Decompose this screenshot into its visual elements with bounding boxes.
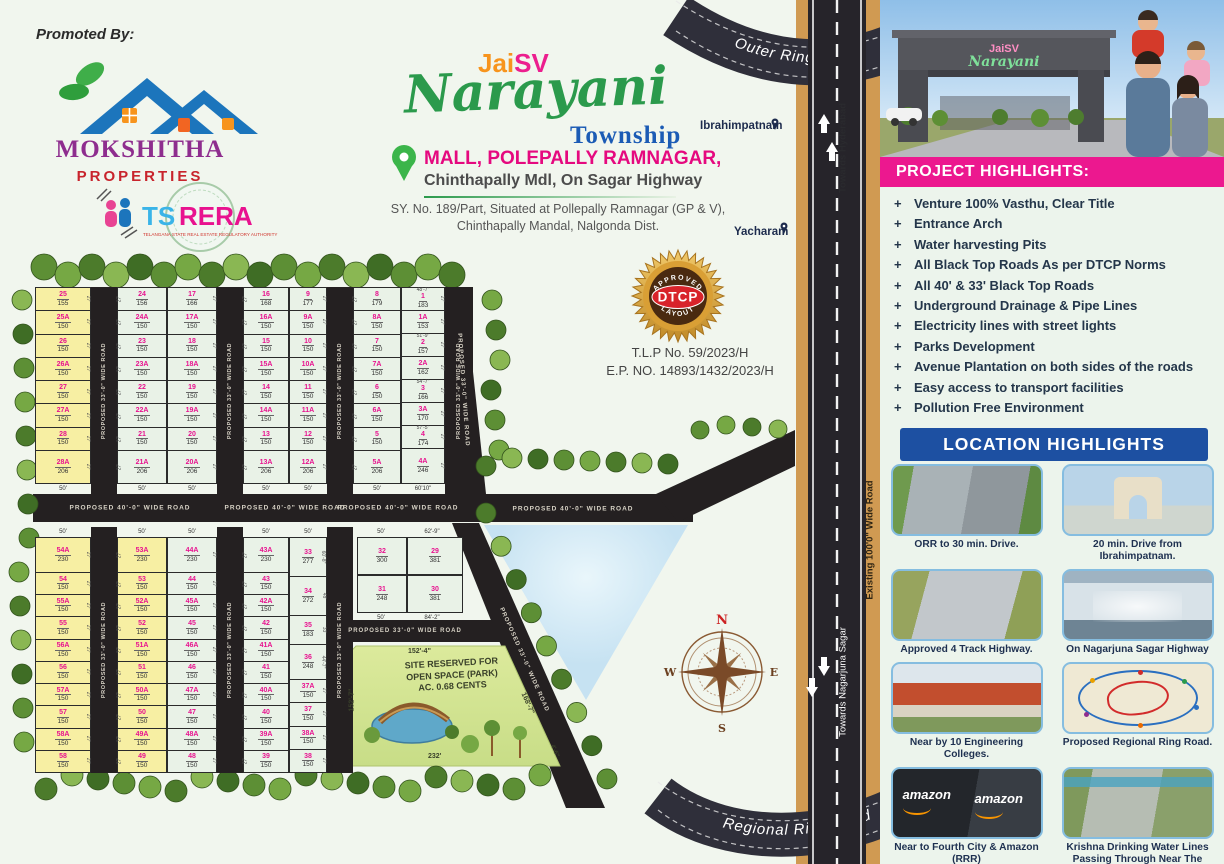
plot-36: 3624844'-7" bbox=[290, 645, 326, 680]
plot-number: 46A bbox=[184, 642, 201, 651]
ep-number: E.P. NO. 14893/1432/2023/H bbox=[582, 362, 798, 380]
plot-40A: 40A15027' bbox=[244, 684, 288, 706]
plot-44: 4415027' bbox=[168, 573, 216, 595]
plot-44A: 44A23027' bbox=[168, 538, 216, 573]
plot-number: 19A bbox=[184, 407, 201, 416]
plot-42: 4215027' bbox=[244, 617, 288, 639]
plot-number: 8 bbox=[373, 291, 381, 300]
tree-icon bbox=[486, 320, 506, 340]
plot-43A: 43A23027' bbox=[244, 538, 288, 573]
plot-46: 4615027' bbox=[168, 662, 216, 684]
photo-four-track-highway bbox=[891, 569, 1043, 641]
road-33-wide: PROPOSED 33'-0" WIDE ROAD bbox=[91, 527, 117, 773]
plot-number: 18A bbox=[184, 361, 201, 370]
photo-engineering-colleges bbox=[891, 662, 1043, 734]
plot-number: 27A bbox=[55, 407, 72, 416]
tree-icon bbox=[477, 774, 499, 796]
plot-number: 44 bbox=[186, 576, 198, 585]
plot-area: 150 bbox=[137, 393, 148, 400]
tree-icon bbox=[485, 410, 505, 430]
tree-icon bbox=[521, 603, 541, 623]
tree-icon bbox=[552, 669, 572, 689]
plot-number: 56 bbox=[57, 664, 69, 673]
plot-area: 150 bbox=[187, 673, 198, 680]
plot-area: 150 bbox=[372, 323, 383, 330]
plot-number: 29 bbox=[429, 548, 441, 557]
plot-area: 150 bbox=[137, 651, 148, 658]
plot-number: 43 bbox=[260, 576, 272, 585]
plot-number: 1A bbox=[417, 314, 430, 323]
plot-number: 6A bbox=[371, 407, 384, 416]
tree-icon bbox=[103, 262, 129, 288]
plot-number: 45A bbox=[184, 598, 201, 607]
tree-icon bbox=[55, 262, 81, 288]
tree-icon bbox=[223, 254, 249, 280]
road-40-label: PROPOSED 40'-0" WIDE ROAD bbox=[512, 506, 633, 513]
plot-side-dim: 44'-7" bbox=[320, 656, 326, 669]
column-dim-label: 60'10" bbox=[401, 484, 445, 494]
plot-area: 150 bbox=[261, 651, 272, 658]
tree-icon bbox=[199, 262, 225, 288]
amazon-smile-icon bbox=[903, 801, 931, 815]
highlight-item: +Easy access to transport facilities bbox=[894, 378, 1216, 398]
plot-56A: 56A15027' bbox=[36, 640, 90, 662]
plot-17A: 17A15027' bbox=[168, 311, 216, 334]
plot-5: 515027' bbox=[354, 428, 400, 451]
plot-area: 150 bbox=[261, 393, 272, 400]
plot-number: 57A bbox=[55, 687, 72, 696]
plot-side-dim: 27' bbox=[352, 389, 358, 396]
plot-area: 150 bbox=[58, 606, 69, 613]
plus-bullet-icon: + bbox=[894, 214, 914, 234]
plot-area: 150 bbox=[261, 416, 272, 423]
plot-column-cells: 44A23027'4415027'45A15027'4515027'46A150… bbox=[167, 537, 217, 773]
plot-side-dim: 27' bbox=[242, 580, 248, 587]
plot-6: 615027' bbox=[354, 381, 400, 404]
plot-41: 4115027' bbox=[244, 662, 288, 684]
plot-area: 230 bbox=[261, 556, 272, 563]
location-highlights-header: LOCATION HIGHLIGHTS bbox=[900, 428, 1208, 461]
plot-number: 23 bbox=[136, 338, 148, 347]
plot-number: 54 bbox=[57, 576, 69, 585]
plot-52: 5215027' bbox=[118, 617, 166, 639]
plot-number: 6 bbox=[373, 384, 381, 393]
plot-column-cells: 54A23027'5415027'55A15027'5515027'56A150… bbox=[35, 537, 91, 773]
plot-number: 53A bbox=[134, 547, 151, 556]
plot-area: 150 bbox=[137, 370, 148, 377]
project-name: Narayani bbox=[403, 55, 669, 125]
plot-area: 150 bbox=[58, 695, 69, 702]
plot-25: 2515527' bbox=[36, 288, 90, 311]
plot-number: 28A bbox=[55, 459, 72, 468]
column-dim-label: 50' bbox=[35, 527, 91, 537]
info-panel: JaiSV Narayani PROJECT HIGHLIGHTS: +Vent… bbox=[880, 0, 1224, 864]
arch-opening bbox=[1129, 495, 1147, 519]
plot-20A: 20A20627' bbox=[168, 451, 216, 483]
map-marker-icon bbox=[1090, 678, 1095, 683]
highlight-text: Water harvesting Pits bbox=[914, 235, 1046, 255]
project-type: Township bbox=[570, 122, 681, 150]
tree-icon bbox=[606, 452, 626, 472]
plot-side-dim: 27' bbox=[242, 436, 248, 443]
plot-number: 26A bbox=[55, 361, 72, 370]
map-marker-icon bbox=[1084, 712, 1089, 717]
plot-area: 150 bbox=[58, 439, 69, 446]
photo-orr-drive bbox=[891, 464, 1043, 536]
plot-side-dim: 27' bbox=[242, 389, 248, 396]
location-card-engineering-colleges: Near by 10 Engineering Colleges. bbox=[889, 662, 1044, 761]
plot-area: 248 bbox=[377, 595, 388, 602]
plot-12: 1215027' bbox=[290, 428, 326, 451]
plot-number: 20A bbox=[184, 459, 201, 468]
tree-icon bbox=[269, 778, 291, 800]
plot-number: 9A bbox=[302, 314, 315, 323]
plot-area: 150 bbox=[187, 416, 198, 423]
corner-row: 3230029381 bbox=[357, 537, 461, 575]
plot-number: 2 bbox=[419, 339, 427, 348]
tree-icon bbox=[295, 262, 321, 288]
plot-number: 33 bbox=[302, 549, 314, 558]
highlight-item: +All Black Top Roads As per DTCP Norms bbox=[894, 255, 1216, 275]
plot-area: 150 bbox=[303, 715, 314, 722]
plot-side-dim: 27' bbox=[116, 436, 122, 443]
plot-number: 12A bbox=[300, 459, 317, 468]
plot-area: 230 bbox=[137, 556, 148, 563]
plot-column-cells: 2515527'25A15027'2615027'26A15027'271502… bbox=[35, 287, 91, 484]
plot-13A: 13A20627' bbox=[244, 451, 288, 483]
location-card-regional-ring-road-map: Proposed Regional Ring Road. bbox=[1060, 662, 1215, 761]
road-33-wide: PROPOSED 33'-0" WIDE ROAD bbox=[327, 527, 353, 773]
place-pins bbox=[772, 119, 788, 235]
photo-nagarjuna-dam bbox=[1062, 569, 1214, 641]
plot-side-dim: 27' bbox=[352, 319, 358, 326]
plot-10A: 10A15027' bbox=[290, 358, 326, 381]
location-card-four-track-highway: Approved 4 Track Highway. bbox=[889, 569, 1044, 656]
tree-icon bbox=[217, 770, 239, 792]
people-icon bbox=[97, 189, 137, 238]
plot-side-dim: 27' bbox=[352, 436, 358, 443]
highlight-text: All Black Top Roads As per DTCP Norms bbox=[914, 255, 1166, 275]
plot-number: 13A bbox=[258, 459, 275, 468]
plot-number: 44A bbox=[184, 547, 201, 556]
corner-dim-label: 62'-9" bbox=[405, 527, 459, 537]
tree-icon bbox=[481, 380, 501, 400]
highlight-text: Easy access to transport facilities bbox=[914, 378, 1124, 398]
highlight-item: +Parks Development bbox=[894, 337, 1216, 357]
location-caption: Near to Fourth City & Amazon (RRR) bbox=[889, 842, 1044, 864]
plot-block-corner: 50'62'-9"3230029381312483038150'84'-2" bbox=[357, 527, 461, 623]
plot-20: 2015027' bbox=[168, 428, 216, 451]
plot-number: 39 bbox=[260, 753, 272, 762]
tree-icon bbox=[79, 254, 105, 280]
plot-column: 50'53A23027'5315027'52A15027'5215027'51A… bbox=[117, 527, 167, 773]
plot-area: 150 bbox=[372, 439, 383, 446]
tree-icon bbox=[367, 254, 393, 280]
plot-area: 183 bbox=[303, 631, 314, 638]
plot-number: 5A bbox=[371, 459, 384, 468]
plot-55: 5515027' bbox=[36, 617, 90, 639]
plot-48: 4815027' bbox=[168, 751, 216, 772]
plot-area: 230 bbox=[58, 556, 69, 563]
plot-area: 150 bbox=[372, 393, 383, 400]
tree-icon bbox=[529, 764, 551, 786]
plot-side-dim: 27' bbox=[116, 758, 122, 765]
plot-column-cells: 2415627'24A15027'2315027'23A15027'221502… bbox=[117, 287, 167, 484]
amazon-logo-text: amazon bbox=[903, 787, 951, 802]
plot-area: 183 bbox=[418, 302, 429, 309]
plot-area: 150 bbox=[187, 651, 198, 658]
column-dim-label: 50' bbox=[243, 527, 289, 537]
tree-icon bbox=[271, 254, 297, 280]
plot-area: 150 bbox=[137, 629, 148, 636]
plot-number: 28 bbox=[57, 431, 69, 440]
highlight-item: +Entrance Arch bbox=[894, 214, 1216, 234]
plot-side-dim: 27' bbox=[242, 552, 248, 559]
plot-area: 150 bbox=[261, 740, 272, 747]
plot-33: 3327760'-8" bbox=[290, 538, 326, 577]
corner-dim-label: 50' bbox=[357, 527, 405, 537]
plot-number: 11A bbox=[300, 407, 316, 416]
plot-51: 5115027' bbox=[118, 662, 166, 684]
plot-number: 51A bbox=[134, 642, 151, 651]
tree-icon bbox=[399, 780, 421, 802]
plot-15: 1515027' bbox=[244, 335, 288, 358]
tree-icon bbox=[12, 664, 32, 684]
plot-number: 22 bbox=[136, 384, 148, 393]
plot-area: 150 bbox=[261, 695, 272, 702]
plot-area: 150 bbox=[303, 393, 314, 400]
plot-50A: 50A15027' bbox=[118, 684, 166, 706]
plot-side-dim: 60'-8" bbox=[320, 551, 326, 564]
plus-bullet-icon: + bbox=[894, 276, 914, 296]
plot-number: 32 bbox=[376, 548, 388, 557]
road-33-label: PROPOSED 33'-0" WIDE ROAD bbox=[101, 342, 107, 438]
corner-dim-label: 50' bbox=[357, 613, 405, 623]
tree-icon bbox=[14, 358, 34, 378]
road-33-label: PROPOSED 33'-0" WIDE ROAD bbox=[337, 342, 343, 438]
tree-icon bbox=[691, 421, 709, 439]
column-dim-label: 50' bbox=[117, 527, 167, 537]
location-caption: Krishna Drinking Water Lines Passing Thr… bbox=[1060, 842, 1215, 864]
plot-30: 30381 bbox=[407, 575, 463, 613]
plot-number: 51 bbox=[136, 664, 148, 673]
photo-krishna-water-lines bbox=[1062, 767, 1214, 839]
plot-number: 4A bbox=[417, 458, 430, 467]
plot-42A: 42A15027' bbox=[244, 595, 288, 617]
plot-38: 3815027' bbox=[290, 750, 326, 772]
location-line2: Chinthapally Mdl, On Sagar Highway bbox=[424, 172, 702, 190]
plot-area: 277 bbox=[303, 558, 314, 565]
plot-27: 2715027' bbox=[36, 381, 90, 404]
highlight-item: +Water harvesting Pits bbox=[894, 235, 1216, 255]
plot-column: 2515527'25A15027'2615027'26A15027'271502… bbox=[35, 287, 91, 494]
plot-side-dim: 27' bbox=[352, 296, 358, 303]
tree-icon bbox=[580, 451, 600, 471]
park-dim-bottom: 232' bbox=[428, 753, 441, 760]
plot-area: 150 bbox=[58, 370, 69, 377]
plot-41A: 41A15027' bbox=[244, 640, 288, 662]
plot-side-dim: 27' bbox=[116, 464, 122, 471]
plot-number: 43A bbox=[258, 547, 275, 556]
plot-side-dim: 27' bbox=[242, 319, 248, 326]
plot-number: 26 bbox=[57, 338, 69, 347]
tree-icon bbox=[632, 453, 652, 473]
plot-55A: 55A15027' bbox=[36, 595, 90, 617]
plot-area: 150 bbox=[58, 393, 69, 400]
plot-side-dim: 27' bbox=[116, 552, 122, 559]
tree-icon bbox=[175, 254, 201, 280]
plot-number: 37 bbox=[302, 706, 314, 715]
plot-57: 5715027' bbox=[36, 706, 90, 728]
plot-side-dim: 27' bbox=[242, 669, 248, 676]
corner-row: 3124830381 bbox=[357, 575, 461, 613]
plot-area: 150 bbox=[303, 692, 314, 699]
plot-area: 248 bbox=[303, 663, 314, 670]
dtcp-badge: APPROVED DTCP LAYOUT bbox=[632, 250, 724, 342]
mokshitha-logo bbox=[58, 57, 258, 134]
tree-icon bbox=[18, 494, 38, 514]
location-line1: MALL, POLEPALLY RAMNAGAR, bbox=[424, 148, 721, 170]
road-33-wide: PROPOSED 33'-0" WIDE ROAD bbox=[91, 287, 117, 494]
plot-side-dim: 27' bbox=[352, 464, 358, 471]
plot-1: 48'-7"118327' bbox=[402, 288, 444, 311]
water-pipeline bbox=[1064, 777, 1212, 787]
plot-number: 56A bbox=[55, 642, 72, 651]
plot-24A: 24A15027' bbox=[118, 311, 166, 334]
compass-w: W bbox=[663, 666, 677, 679]
plot-area: 150 bbox=[261, 439, 272, 446]
plot-number: 17A bbox=[184, 314, 201, 323]
plus-bullet-icon: + bbox=[894, 337, 914, 357]
plot-number: 5 bbox=[373, 431, 381, 440]
plot-column: 1616827'16A15027'1515027'15A15027'141502… bbox=[243, 287, 289, 494]
plus-bullet-icon: + bbox=[894, 378, 914, 398]
towards-sagar-label: Towards Nagarjuna Sagar bbox=[838, 627, 849, 737]
plot-side-dim: 27' bbox=[116, 625, 122, 632]
column-dim-label: 50' bbox=[243, 484, 289, 494]
tree-icon bbox=[491, 536, 511, 556]
location-card-amazon-boxes: amazonamazonNear to Fourth City & Amazon… bbox=[889, 767, 1044, 864]
plot-side-dim: 27' bbox=[116, 647, 122, 654]
plot-area: 150 bbox=[137, 584, 148, 591]
plot-22A: 22A15027' bbox=[118, 404, 166, 427]
plot-area: 150 bbox=[137, 673, 148, 680]
highlight-item: +Pollution Free Environment bbox=[894, 398, 1216, 418]
plot-number: 42 bbox=[260, 620, 272, 629]
plot-number: 58 bbox=[57, 753, 69, 762]
plot-area: 150 bbox=[261, 762, 272, 769]
map-marker-icon bbox=[1138, 670, 1143, 675]
park-dim-left: 152'-7" bbox=[349, 689, 356, 712]
plot-43: 4315027' bbox=[244, 573, 288, 595]
plot-area: 206 bbox=[58, 468, 69, 475]
plot-number: 38 bbox=[302, 753, 314, 762]
plot-37A: 37A15027' bbox=[290, 680, 326, 703]
plot-side-dim: 27' bbox=[242, 691, 248, 698]
survey-line2: Chinthapally Mandal, Nalgonda Dist. bbox=[368, 219, 748, 233]
plot-side-dim: 27' bbox=[116, 389, 122, 396]
plot-23A: 23A15027' bbox=[118, 358, 166, 381]
plot-area: 206 bbox=[187, 468, 198, 475]
highlight-text: All 40' & 33' Black Top Roads bbox=[914, 276, 1094, 296]
location-card-orr-drive: ORR to 30 min. Drive. bbox=[889, 464, 1044, 563]
rera-ts-text: TS bbox=[142, 201, 175, 231]
tree-icon bbox=[769, 420, 787, 438]
plot-area: 150 bbox=[261, 718, 272, 725]
plot-23: 2315027' bbox=[118, 335, 166, 358]
plot-area: 168 bbox=[261, 300, 272, 307]
tree-icon bbox=[554, 450, 574, 470]
plot-16: 1616827' bbox=[244, 288, 288, 311]
promoter-subtitle: PROPERTIES bbox=[30, 168, 250, 185]
tree-icon bbox=[247, 262, 273, 288]
plot-40: 4015027' bbox=[244, 706, 288, 728]
plot-1A: 1A15327' bbox=[402, 311, 444, 334]
plot-number: 31 bbox=[376, 586, 388, 595]
plot-2: 51'-9"215727' bbox=[402, 334, 444, 357]
plot-area: 150 bbox=[187, 606, 198, 613]
plot-9: 917727' bbox=[290, 288, 326, 311]
plot-28A: 28A20627' bbox=[36, 451, 90, 483]
plot-54A: 54A23027' bbox=[36, 538, 90, 573]
highlight-item: +Electricity lines with street lights bbox=[894, 316, 1216, 336]
tree-icon bbox=[139, 776, 161, 798]
rera-rera-text: RERA bbox=[179, 201, 253, 231]
plot-side-dim: 27' bbox=[116, 319, 122, 326]
promoted-by-heading: Promoted By: bbox=[36, 26, 134, 43]
column-dim-label: 50' bbox=[35, 484, 91, 494]
tree-icon bbox=[13, 324, 33, 344]
plot-21: 2115027' bbox=[118, 428, 166, 451]
plot-number: 11 bbox=[302, 384, 313, 393]
road-33-label: PROPOSED 33'-0" WIDE ROAD bbox=[348, 628, 462, 634]
tree-icon bbox=[451, 770, 473, 792]
plot-area: 150 bbox=[261, 323, 272, 330]
highlight-item: +Venture 100% Vasthu, Clear Title bbox=[894, 194, 1216, 214]
tree-icon bbox=[717, 416, 735, 434]
column-dim-label: 50' bbox=[353, 484, 401, 494]
plot-area: 150 bbox=[261, 584, 272, 591]
photo-amazon-boxes: amazonamazon bbox=[891, 767, 1043, 839]
plot-number: 21 bbox=[136, 431, 148, 440]
plot-column-cells: 917727'9A15027'1015027'10A15027'1115027'… bbox=[289, 287, 327, 484]
plot-57A: 57A15027' bbox=[36, 684, 90, 706]
plot-side-dim: 27' bbox=[352, 366, 358, 373]
plot-area: 179 bbox=[372, 300, 383, 307]
plot-number: 39A bbox=[258, 731, 275, 740]
column-dim-label: 50' bbox=[167, 527, 217, 537]
plot-area: 150 bbox=[303, 761, 314, 768]
tree-icon bbox=[658, 454, 678, 474]
plot-58: 5815027' bbox=[36, 751, 90, 772]
plot-22: 2215027' bbox=[118, 381, 166, 404]
plot-3A: 3A17027' bbox=[402, 403, 444, 426]
plot-area: 150 bbox=[137, 762, 148, 769]
location-caption: Proposed Regional Ring Road. bbox=[1060, 737, 1215, 749]
plot-area: 206 bbox=[261, 468, 272, 475]
plot-38A: 38A15027' bbox=[290, 727, 326, 750]
plot-column-cells: 1616827'16A15027'1515027'15A15027'141502… bbox=[243, 287, 289, 484]
road-40-label: PROPOSED 40'-0" WIDE ROAD bbox=[224, 505, 345, 512]
plot-48A: 48A15027' bbox=[168, 729, 216, 751]
location-caption: On Nagarjuna Sagar Highway bbox=[1060, 644, 1215, 656]
rera-tagline: TELANGANA STATE REAL ESTATE REGULATORY A… bbox=[143, 232, 277, 237]
plot-area: 150 bbox=[187, 695, 198, 702]
plot-26: 2615027' bbox=[36, 335, 90, 358]
plot-46A: 46A15027' bbox=[168, 640, 216, 662]
entrance-photo: JaiSV Narayani bbox=[880, 0, 1224, 157]
plot-side-dim: 27' bbox=[116, 714, 122, 721]
